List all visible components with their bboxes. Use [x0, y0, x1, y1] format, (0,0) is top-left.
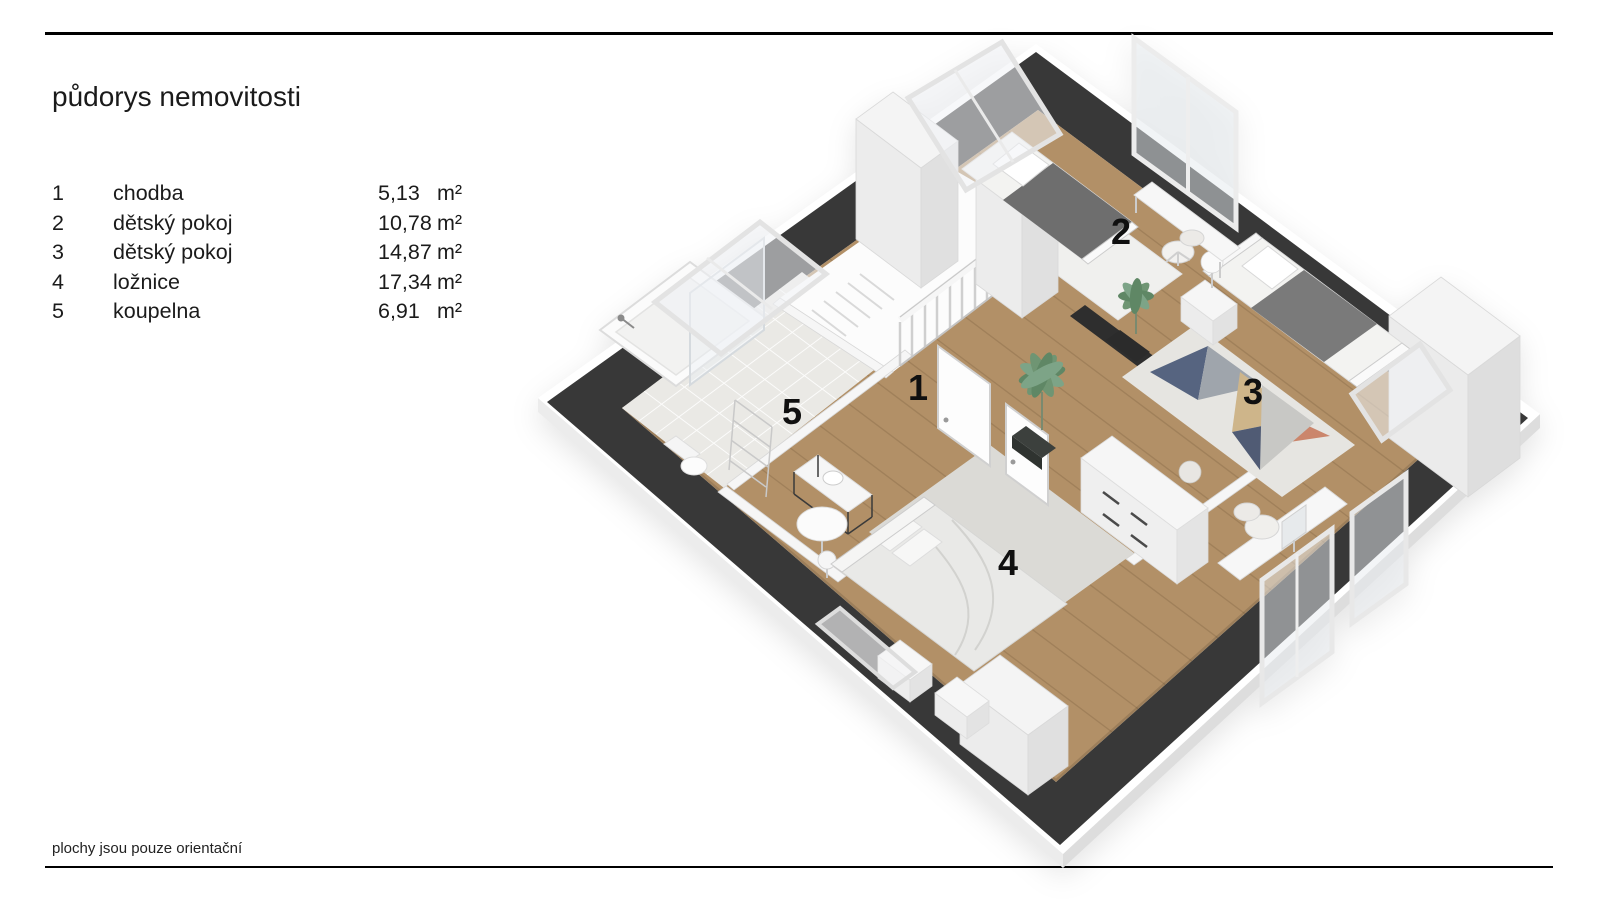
page-title: půdorys nemovitosti [52, 81, 301, 113]
legend-area-unit: m² [437, 238, 462, 268]
legend-room-area: 14,87 [378, 238, 437, 268]
legend-row: 2 dětský pokoj 10,78 m² [52, 209, 462, 239]
legend-area-unit: m² [437, 209, 462, 239]
floorplan-render: 1 2 3 4 5 [0, 0, 1600, 900]
legend-row: 5 koupelna 6,91 m² [52, 297, 462, 327]
footnote: plochy jsou pouze orientační [52, 840, 242, 857]
legend-room-number: 1 [52, 179, 113, 209]
legend-row: 1 chodba 5,13 m² [52, 179, 462, 209]
room-label-5: 5 [782, 391, 802, 432]
legend-room-number: 3 [52, 238, 113, 268]
legend-room-area: 5,13 [378, 179, 437, 209]
legend-room-number: 2 [52, 209, 113, 239]
legend-room-name: dětský pokoj [113, 209, 378, 239]
legend-row: 3 dětský pokoj 14,87 m² [52, 238, 462, 268]
legend-room-area: 6,91 [378, 297, 437, 327]
legend-room-area: 17,34 [378, 268, 437, 298]
legend-area-unit: m² [437, 179, 462, 209]
room-label-1: 1 [908, 367, 928, 408]
legend-room-area: 10,78 [378, 209, 437, 239]
page: půdorys nemovitosti 1 chodba 5,13 m² 2 d… [0, 0, 1600, 900]
legend-room-name: dětský pokoj [113, 238, 378, 268]
room-label-2: 2 [1111, 211, 1131, 252]
room-legend: 1 chodba 5,13 m² 2 dětský pokoj 10,78 m²… [52, 179, 462, 327]
legend-area-unit: m² [437, 297, 462, 327]
legend-row: 4 ložnice 17,34 m² [52, 268, 462, 298]
room-label-3: 3 [1243, 371, 1263, 412]
legend-area-unit: m² [437, 268, 462, 298]
room-label-4: 4 [998, 542, 1018, 583]
legend-room-number: 5 [52, 297, 113, 327]
legend-room-name: ložnice [113, 268, 378, 298]
legend-room-number: 4 [52, 268, 113, 298]
legend-room-name: koupelna [113, 297, 378, 327]
legend-room-name: chodba [113, 179, 378, 209]
